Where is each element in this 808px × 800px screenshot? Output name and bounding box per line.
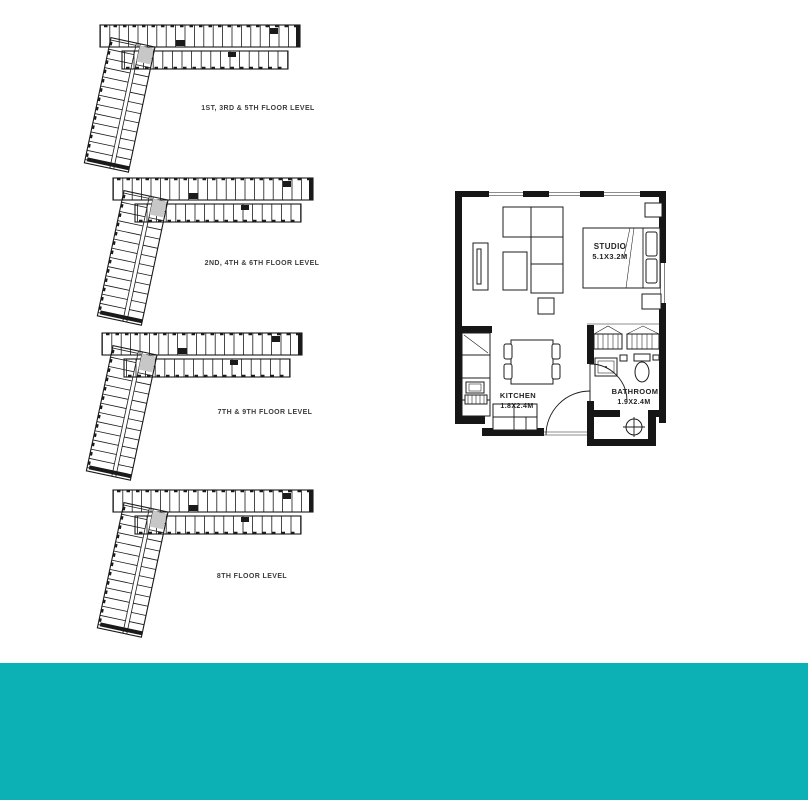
kitchen-sink bbox=[466, 382, 484, 393]
entry-door bbox=[544, 391, 590, 435]
bathroom-sink bbox=[595, 358, 617, 376]
building-plan-level-7-9 bbox=[84, 331, 304, 483]
armchair bbox=[503, 252, 527, 290]
pillow bbox=[646, 232, 657, 256]
tv-unit bbox=[473, 243, 488, 290]
floor-level-label-4: 8TH FLOOR LEVEL bbox=[217, 573, 287, 580]
floor-level-label-3: 7TH & 9TH FLOOR LEVEL bbox=[218, 409, 313, 416]
footer-band: Studio A Residence Specifications Studio… bbox=[0, 663, 808, 800]
studio-room-label: STUDIO bbox=[594, 242, 627, 251]
side-table bbox=[538, 298, 554, 314]
kitchen-room-label: KITCHEN bbox=[500, 391, 536, 400]
brochure-page: 1ST, 3RD & 5TH FLOOR LEVEL 2ND, 4TH & 6T… bbox=[0, 0, 808, 800]
floor-level-label-1: 1ST, 3RD & 5TH FLOOR LEVEL bbox=[201, 105, 314, 112]
bathroom-accessory bbox=[653, 355, 659, 360]
toilet-icon bbox=[634, 354, 650, 382]
unit-floor-plan: STUDIO 5.1X3.2M KITCHEN 1.8X2.4M BATHROO… bbox=[450, 188, 672, 460]
studio-room-dimensions: 5.1X3.2M bbox=[592, 252, 627, 261]
bathroom-room-dimensions: 1.9X2.4M bbox=[617, 399, 650, 406]
bathroom-room-label: BATHROOM bbox=[612, 387, 659, 396]
nightstand bbox=[645, 203, 662, 217]
stove bbox=[465, 395, 487, 404]
bathroom-accessory bbox=[620, 355, 627, 361]
building-plan-level-2-4-6 bbox=[95, 176, 315, 328]
washing-machine-icon bbox=[623, 417, 645, 437]
building-plan-level-1-3-5 bbox=[82, 23, 302, 175]
wardrobe bbox=[587, 324, 666, 349]
dining-table bbox=[504, 340, 560, 384]
pillow bbox=[646, 259, 657, 283]
building-plan-level-8 bbox=[95, 488, 315, 640]
chair bbox=[504, 344, 512, 359]
floor-level-label-2: 2ND, 4TH & 6TH FLOOR LEVEL bbox=[205, 260, 320, 267]
chair bbox=[504, 364, 512, 379]
chair bbox=[552, 364, 560, 379]
kitchen-room-dimensions: 1.8X2.4M bbox=[500, 403, 533, 410]
nightstand bbox=[642, 294, 661, 309]
chair bbox=[552, 344, 560, 359]
